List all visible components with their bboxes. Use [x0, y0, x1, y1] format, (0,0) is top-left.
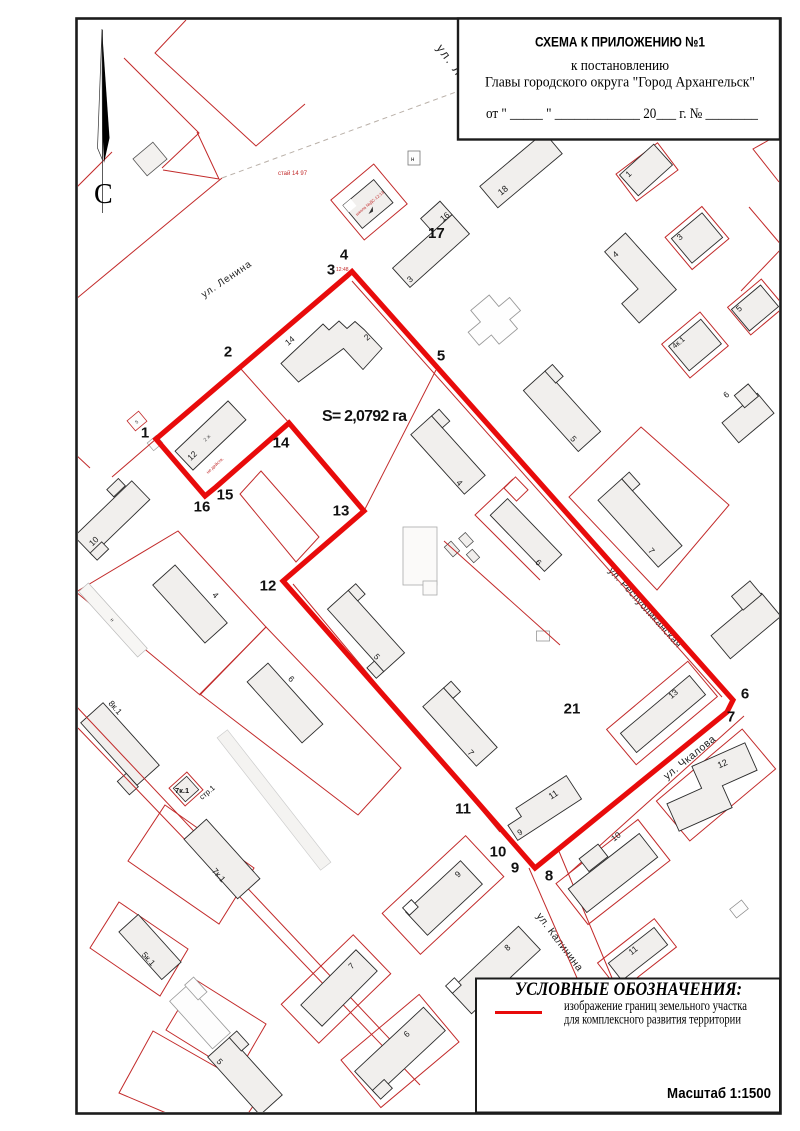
svg-text:2: 2 [224, 344, 232, 361]
svg-text:от " _____ " _____________ 20_: от " _____ " _____________ 20___ г. № __… [486, 106, 759, 122]
svg-text:11: 11 [455, 801, 471, 818]
svg-text:СХЕМА К ПРИЛОЖЕНИЮ №1: СХЕМА К ПРИЛОЖЕНИЮ №1 [535, 34, 705, 50]
svg-text:стай 14 97: стай 14 97 [278, 170, 308, 177]
svg-text:15: 15 [217, 487, 234, 504]
svg-text:3: 3 [327, 262, 335, 279]
svg-text:13: 13 [333, 503, 350, 520]
svg-text:14: 14 [273, 435, 290, 452]
svg-text:7к.1: 7к.1 [175, 786, 189, 795]
svg-text:7: 7 [727, 709, 735, 726]
svg-text:12: 12 [260, 578, 277, 595]
svg-text:Масштаб 1:1500: Масштаб 1:1500 [667, 1085, 771, 1102]
svg-text:4: 4 [340, 247, 349, 264]
svg-text:10: 10 [490, 844, 507, 861]
svg-text:н: н [411, 157, 414, 163]
svg-text:9: 9 [511, 860, 519, 877]
svg-text:С: С [94, 179, 113, 210]
svg-text:5: 5 [437, 348, 445, 365]
svg-text:12:48: 12:48 [336, 267, 349, 273]
svg-text:УСЛОВНЫЕ ОБОЗНАЧЕНИЯ:: УСЛОВНЫЕ ОБОЗНАЧЕНИЯ: [515, 979, 742, 1000]
svg-text:Главы городского округа "Город: Главы городского округа "Город Архангель… [485, 75, 755, 91]
svg-text:6: 6 [741, 686, 749, 703]
svg-text:8: 8 [545, 868, 553, 885]
svg-text:S= 2,0792 га: S= 2,0792 га [322, 408, 407, 425]
svg-text:к постановлению: к постановлению [571, 58, 669, 74]
svg-text:1: 1 [141, 425, 149, 442]
svg-text:16: 16 [194, 499, 211, 516]
svg-text:21: 21 [564, 701, 581, 718]
svg-text:для комплексного развития терр: для комплексного развития территории [564, 1012, 741, 1027]
svg-text:17: 17 [428, 225, 445, 242]
